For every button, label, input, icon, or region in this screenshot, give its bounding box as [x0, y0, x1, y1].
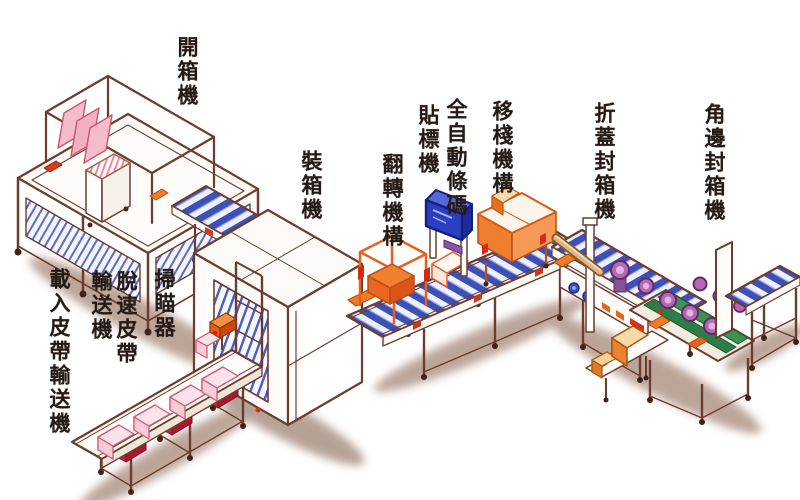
label-speed-release-belt-col2: 輸送機 [90, 270, 111, 342]
label-flap-fold-sealer: 折蓋封箱機 [593, 102, 614, 222]
packaging-line-diagram: 開箱機 裝箱機 翻轉機構 全自動條碼 貼標機 移棧機構 折蓋封箱機 角邊封箱機 … [0, 0, 800, 500]
label-flip-mechanism: 翻轉機構 [381, 153, 402, 249]
label-case-packer: 裝箱機 [300, 150, 321, 222]
label-corner-edge-sealer: 角邊封箱機 [703, 103, 724, 223]
label-auto-barcode-labeler-col2: 貼標機 [417, 104, 438, 176]
label-case-erector: 開箱機 [176, 36, 197, 108]
label-scanner: 掃瞄器 [153, 268, 174, 340]
label-speed-release-belt-col1: 脫速皮帶 [115, 270, 136, 366]
packaging-line-illustration [0, 0, 800, 500]
label-pallet-transfer: 移棧機構 [491, 100, 512, 196]
label-auto-barcode-labeler-col1: 全自動條碼 [445, 98, 466, 218]
label-infeed-belt-conveyor: 載入皮帶輸送機 [48, 268, 69, 436]
